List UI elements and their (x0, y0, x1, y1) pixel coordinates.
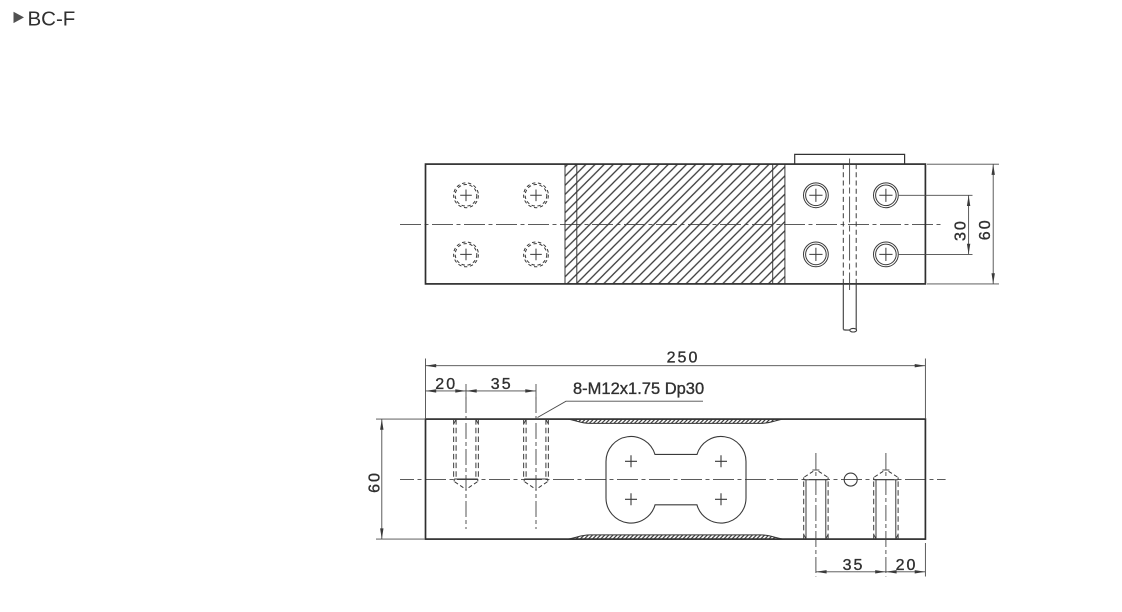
svg-text:60: 60 (977, 218, 994, 240)
svg-text:BC-F: BC-F (28, 8, 76, 31)
svg-text:20: 20 (435, 376, 457, 393)
svg-text:8-M12x1.75 Dp30: 8-M12x1.75 Dp30 (573, 380, 704, 398)
svg-text:60: 60 (367, 471, 384, 493)
svg-text:35: 35 (843, 557, 865, 574)
svg-text:20: 20 (896, 557, 918, 574)
svg-text:35: 35 (491, 376, 513, 393)
svg-text:250: 250 (667, 350, 700, 367)
svg-text:30: 30 (952, 219, 969, 241)
